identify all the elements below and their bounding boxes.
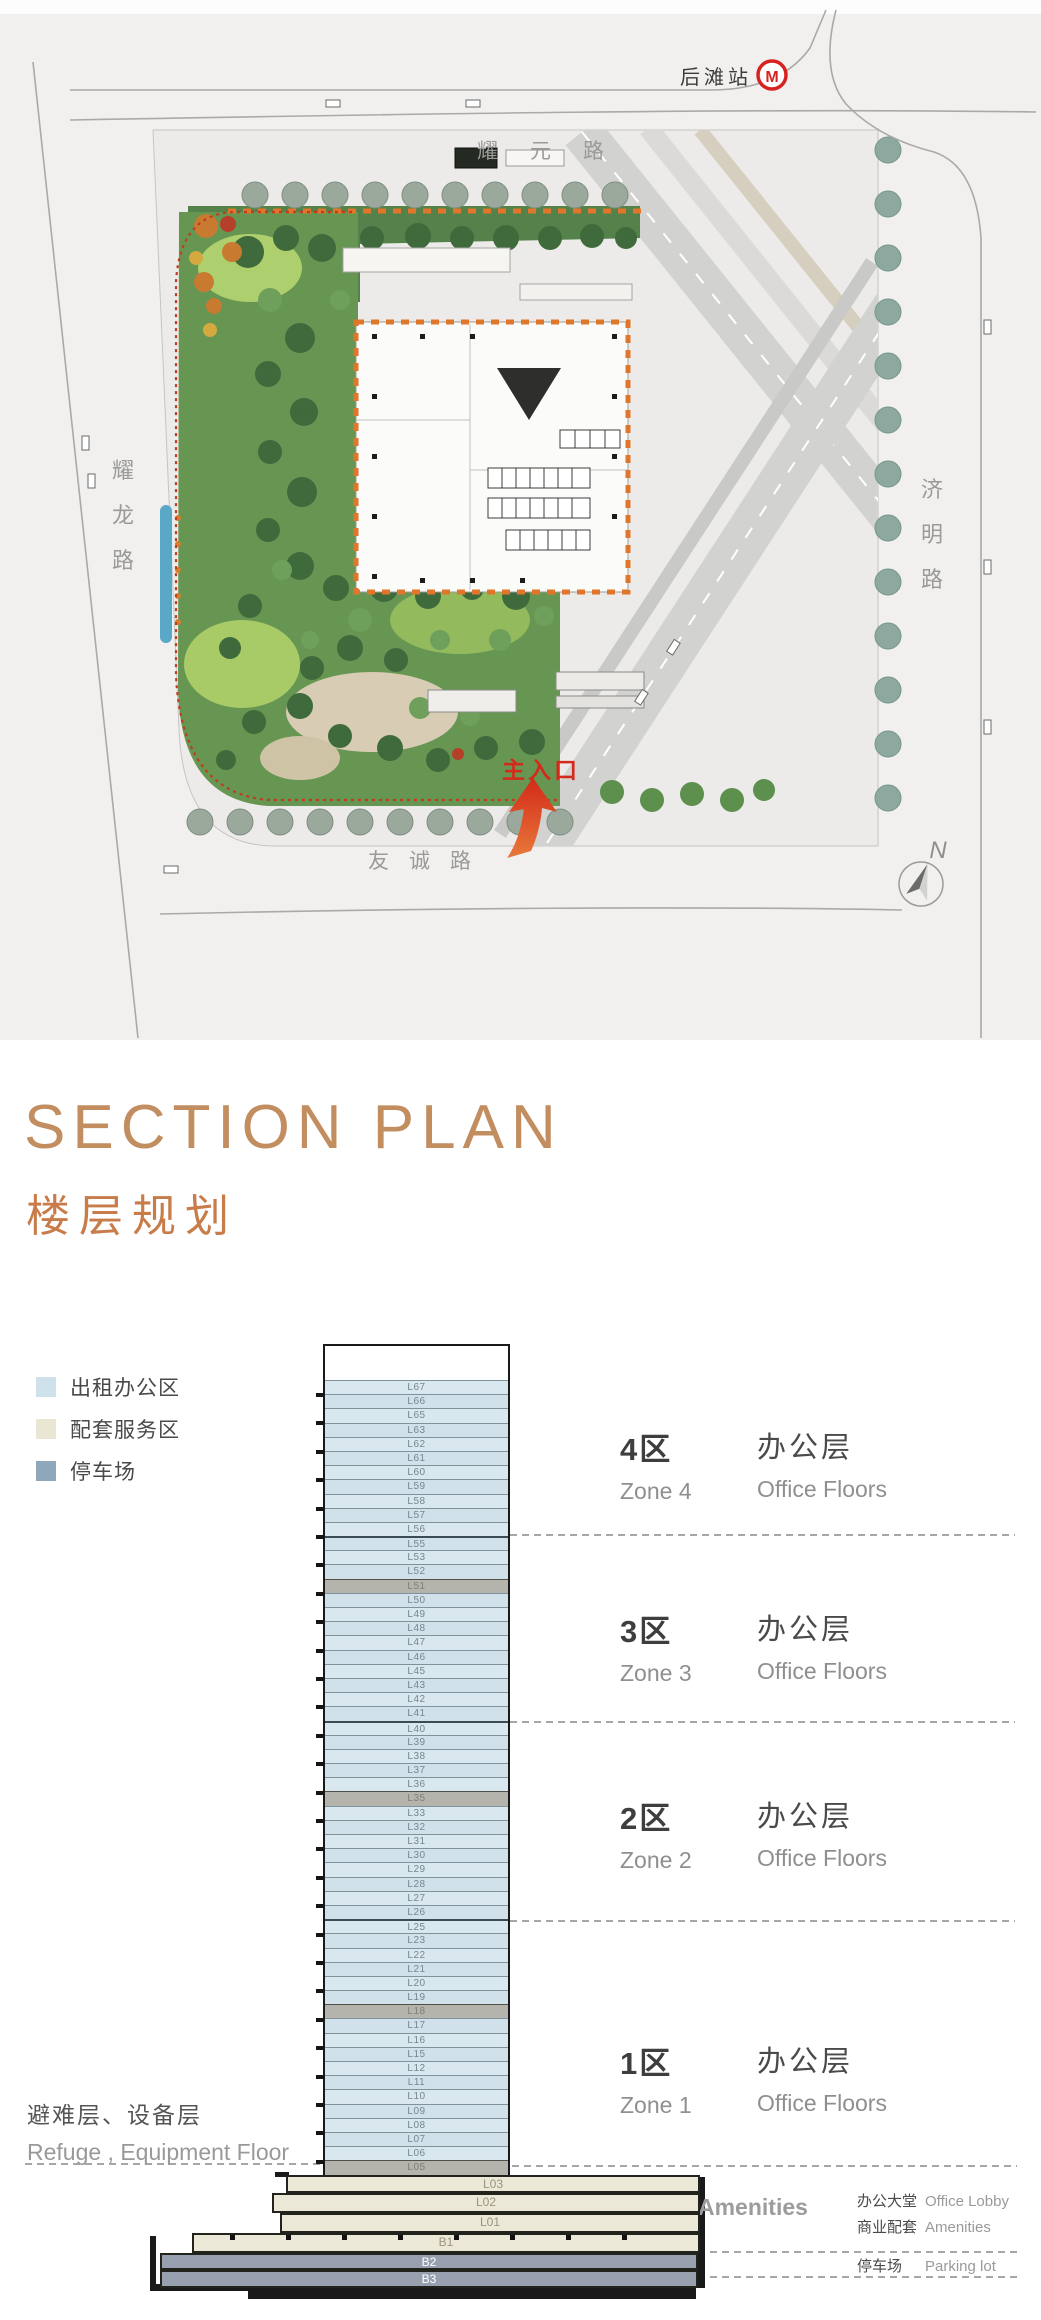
legend-item-parking: 停车场 xyxy=(36,1460,180,1481)
podium-column xyxy=(230,2235,235,2240)
parking-swatch xyxy=(36,1461,56,1481)
podium-column xyxy=(454,2235,459,2240)
svg-text:耀: 耀 xyxy=(112,458,134,483)
floor-row-L05: L05 xyxy=(325,2160,508,2174)
floor-row-L20: L20 xyxy=(325,1976,508,1990)
floor-row-L15: L15 xyxy=(325,2047,508,2061)
page-title: SECTION PLAN xyxy=(24,1092,563,1163)
podium-column xyxy=(566,2235,571,2240)
amenity-divider-top xyxy=(512,2165,1017,2167)
floor-row-L28: L28 xyxy=(325,1877,508,1891)
floor-row-L51: L51 xyxy=(325,1579,508,1593)
zone-1-label: 1区 Zone 1 xyxy=(620,2038,692,2119)
facade-tick xyxy=(316,1904,324,1908)
facade-tick xyxy=(316,1563,324,1567)
svg-text:路: 路 xyxy=(112,548,134,573)
facade-tick xyxy=(316,1791,324,1795)
zone-divider-2-1 xyxy=(510,1920,1015,1922)
zone-4-type: 办公层 Office Floors xyxy=(757,1424,887,1503)
floor-row-L33: L33 xyxy=(325,1806,508,1820)
facade-tick xyxy=(316,1847,324,1851)
floor-row-L39: L39 xyxy=(325,1735,508,1749)
podium-row-L01: L01 xyxy=(280,2213,700,2233)
svg-text:路: 路 xyxy=(921,567,943,592)
floor-row-L49: L49 xyxy=(325,1607,508,1621)
north-label: N xyxy=(929,837,947,864)
floor-row-L36: L36 xyxy=(325,1777,508,1791)
zone-4-label: 4区 Zone 4 xyxy=(620,1424,692,1505)
podium-column xyxy=(398,2235,403,2240)
floor-row-L55: L55 xyxy=(325,1536,508,1550)
floor-row-L06: L06 xyxy=(325,2146,508,2160)
legend-item-amenity: 配套服务区 xyxy=(36,1418,180,1439)
site-plan: 耀元路 友诚路 耀 龙 路 济 明 路 后滩站 M 主入口 N xyxy=(0,0,1041,1040)
floor-row-L62: L62 xyxy=(325,1437,508,1451)
floor-row-L21: L21 xyxy=(325,1962,508,1976)
podium-column xyxy=(510,2235,515,2240)
floor-row-L07: L07 xyxy=(325,2132,508,2146)
svg-text:济: 济 xyxy=(921,477,943,502)
legend-item-office: 出租办公区 xyxy=(36,1376,180,1397)
parking-divider-top xyxy=(710,2251,1017,2253)
metro-logo-icon: M xyxy=(758,61,786,89)
svg-text:龙: 龙 xyxy=(112,503,134,528)
zone-divider-4-3 xyxy=(510,1534,1015,1536)
floor-row-L25: L25 xyxy=(325,1919,508,1933)
zone-3-label: 3区 Zone 3 xyxy=(620,1606,692,1687)
facade-tick xyxy=(316,1592,324,1596)
podium-left-wall xyxy=(150,2236,156,2290)
annotation-parking: 停车场 Parking lot xyxy=(857,2255,996,2276)
floor-row-L37: L37 xyxy=(325,1763,508,1777)
floor-row-L61: L61 xyxy=(325,1451,508,1465)
facade-tick xyxy=(316,1705,324,1709)
floor-row-L60: L60 xyxy=(325,1465,508,1479)
facade-tick xyxy=(316,1478,324,1482)
floor-row-L17: L17 xyxy=(325,2018,508,2032)
floor-row-L11: L11 xyxy=(325,2075,508,2089)
office-swatch xyxy=(36,1377,56,1397)
floor-row-L40: L40 xyxy=(325,1721,508,1735)
facade-tick xyxy=(316,1933,324,1937)
zone-1-type: 办公层 Office Floors xyxy=(757,2038,887,2117)
facade-tick xyxy=(316,1762,324,1766)
floor-row-L63: L63 xyxy=(325,1423,508,1437)
facade-tick xyxy=(316,2018,324,2022)
floor-row-L26: L26 xyxy=(325,1905,508,1919)
refuge-note: 避难层、设备层 Refuge , Equipment Floor xyxy=(27,2096,289,2166)
floor-row-L38: L38 xyxy=(325,1749,508,1763)
podium-row-B3: B3 xyxy=(160,2270,698,2288)
legend: 出租办公区 配套服务区 停车场 xyxy=(36,1376,180,1502)
floor-row-L58: L58 xyxy=(325,1494,508,1508)
floor-row-L65: L65 xyxy=(325,1408,508,1422)
facade-tick xyxy=(316,1989,324,1993)
facade-tick xyxy=(316,2046,324,2050)
floor-row-L18: L18 xyxy=(325,2004,508,2018)
podium-row-B2: B2 xyxy=(160,2253,698,2270)
floor-row-L48: L48 xyxy=(325,1621,508,1635)
floor-row-L31: L31 xyxy=(325,1834,508,1848)
facade-tick xyxy=(316,1535,324,1539)
page-subtitle: 楼层规划 xyxy=(26,1180,238,1244)
main-entrance-label: 主入口 xyxy=(502,757,580,783)
floor-row-L19: L19 xyxy=(325,1990,508,2004)
tower-section: L67L66L65L63L62L61L60L59L58L57L56L55L53L… xyxy=(323,1380,510,2175)
svg-text:M: M xyxy=(765,69,778,86)
podium-column xyxy=(342,2235,347,2240)
podium-row-L02: L02 xyxy=(272,2193,700,2213)
road-label-bottom: 友诚路 xyxy=(368,850,491,873)
zone-2-label: 2区 Zone 2 xyxy=(620,1793,692,1874)
floor-row-L08: L08 xyxy=(325,2118,508,2132)
tower-crown xyxy=(323,1344,510,1380)
facade-tick xyxy=(316,1393,324,1397)
floor-row-L42: L42 xyxy=(325,1692,508,1706)
floor-row-L32: L32 xyxy=(325,1820,508,1834)
floor-row-L47: L47 xyxy=(325,1635,508,1649)
facade-tick xyxy=(316,1961,324,1965)
floor-row-L41: L41 xyxy=(325,1706,508,1720)
podium-column xyxy=(622,2235,627,2240)
floor-row-L35: L35 xyxy=(325,1791,508,1805)
facade-tick xyxy=(316,1734,324,1738)
floor-row-L53: L53 xyxy=(325,1550,508,1564)
road-label-top: 耀元路 xyxy=(477,140,636,163)
floor-row-L29: L29 xyxy=(325,1862,508,1876)
facade-tick xyxy=(316,2131,324,2135)
facade-tick xyxy=(316,1421,324,1425)
floor-row-L12: L12 xyxy=(325,2061,508,2075)
annotation-amenities: 商业配套 Amenities xyxy=(857,2216,991,2237)
floor-row-L45: L45 xyxy=(325,1664,508,1678)
metro-station-label: 后滩站 xyxy=(680,66,752,89)
floor-row-L23: L23 xyxy=(325,1933,508,1947)
floor-row-L30: L30 xyxy=(325,1848,508,1862)
zone-2-type: 办公层 Office Floors xyxy=(757,1793,887,1872)
facade-tick xyxy=(316,1450,324,1454)
zone-divider-3-2 xyxy=(510,1721,1015,1723)
floor-row-L16: L16 xyxy=(325,2033,508,2047)
floor-row-L46: L46 xyxy=(325,1650,508,1664)
road-label-left: 耀 龙 路 xyxy=(112,458,134,573)
floor-row-L57: L57 xyxy=(325,1508,508,1522)
floor-row-L09: L09 xyxy=(325,2104,508,2118)
floor-row-L52: L52 xyxy=(325,1564,508,1578)
podium-row-L03: L03 xyxy=(286,2175,700,2193)
svg-text:明: 明 xyxy=(921,522,943,547)
facade-tick xyxy=(316,1507,324,1511)
floor-row-L66: L66 xyxy=(325,1394,508,1408)
facade-tick xyxy=(316,1819,324,1823)
floor-row-L22: L22 xyxy=(325,1948,508,1962)
parking-divider-bottom xyxy=(710,2276,1017,2278)
facade-tick xyxy=(316,1876,324,1880)
road-label-right: 济 明 路 xyxy=(921,477,943,592)
facade-tick xyxy=(316,1677,324,1681)
podium-column xyxy=(286,2235,291,2240)
floor-row-L67: L67 xyxy=(325,1380,508,1394)
facade-tick xyxy=(316,2160,324,2164)
facade-tick xyxy=(316,2103,324,2107)
podium-base xyxy=(248,2288,696,2299)
page: 耀元路 友诚路 耀 龙 路 济 明 路 后滩站 M 主入口 N SECTI xyxy=(0,0,1041,2320)
amenity-swatch xyxy=(36,1419,56,1439)
floor-row-L59: L59 xyxy=(325,1479,508,1493)
water-feature xyxy=(160,505,172,643)
floor-row-L50: L50 xyxy=(325,1593,508,1607)
facade-tick xyxy=(316,1649,324,1653)
facade-tick xyxy=(316,2075,324,2079)
facade-tick xyxy=(316,1620,324,1624)
building-footprint xyxy=(356,322,628,592)
annotation-office-lobby: 办公大堂 Office Lobby xyxy=(857,2190,1009,2211)
floor-row-L10: L10 xyxy=(325,2089,508,2103)
floor-row-L43: L43 xyxy=(325,1678,508,1692)
floor-row-L27: L27 xyxy=(325,1891,508,1905)
zone-3-type: 办公层 Office Floors xyxy=(757,1606,887,1685)
floor-row-L56: L56 xyxy=(325,1522,508,1536)
